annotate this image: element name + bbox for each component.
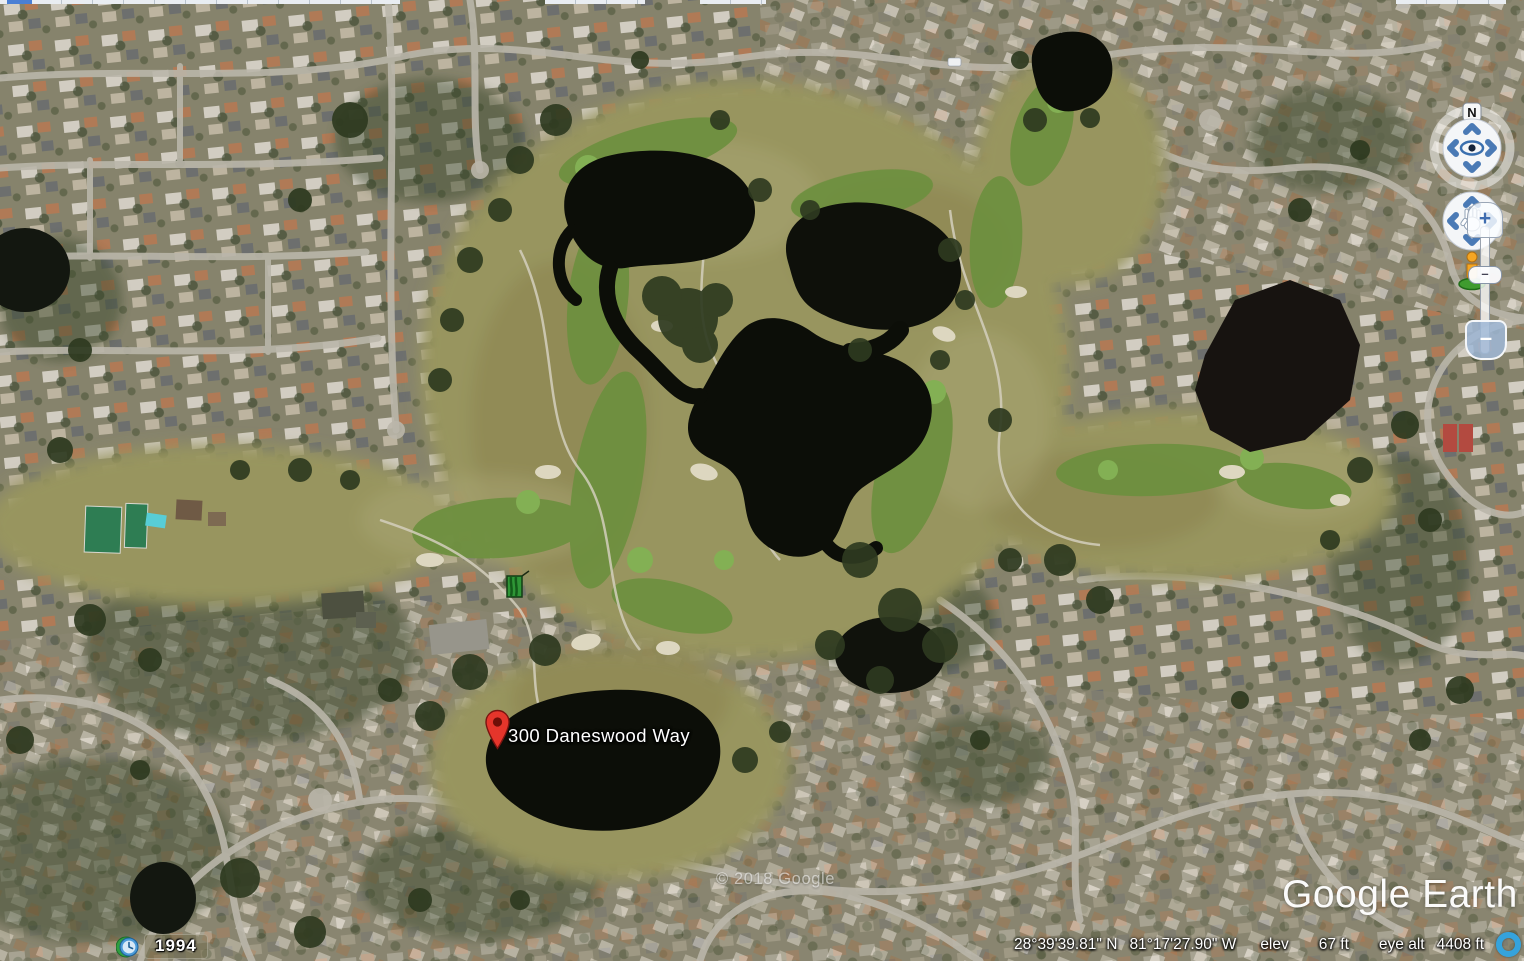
compass-n-label: N — [1467, 105, 1476, 120]
map-copyright: © 2018 Google — [716, 870, 835, 889]
zoom-control[interactable]: + – – — [1462, 200, 1506, 362]
look-joystick[interactable]: N — [1434, 103, 1510, 186]
golf-flag-icon[interactable] — [504, 568, 530, 604]
google-earth-window: 300 Daneswood Way N — [0, 0, 1524, 961]
status-latitude: 28°39'39.81" N — [1014, 936, 1117, 954]
imagery-date-badge: 1994 — [144, 934, 208, 959]
placemark-label[interactable]: 300 Daneswood Way — [508, 725, 690, 747]
satellite-imagery-viewport[interactable] — [0, 0, 1524, 961]
zoom-out-button[interactable]: – — [1465, 320, 1507, 360]
historical-imagery-clock-icon[interactable] — [116, 935, 140, 959]
status-eye-alt-label: eye alt — [1379, 936, 1425, 954]
status-eye-alt-value: 4408 ft — [1437, 936, 1484, 954]
zoom-slider-handle[interactable]: – — [1468, 266, 1502, 284]
zoom-in-button[interactable]: + — [1467, 202, 1503, 238]
google-earth-logo: Google Earth — [1282, 873, 1518, 917]
placemark-pin-icon[interactable] — [484, 709, 511, 751]
status-bar: 28°39'39.81" N 81°17'27.90" W elev 67 ft… — [1014, 932, 1521, 957]
compass-north-button[interactable]: N — [1463, 103, 1481, 121]
status-longitude: 81°17'27.90" W — [1129, 936, 1236, 954]
streaming-progress-icon — [1496, 932, 1521, 957]
status-elev-label: elev — [1260, 936, 1288, 954]
status-elev-value: 67 ft — [1319, 936, 1349, 954]
